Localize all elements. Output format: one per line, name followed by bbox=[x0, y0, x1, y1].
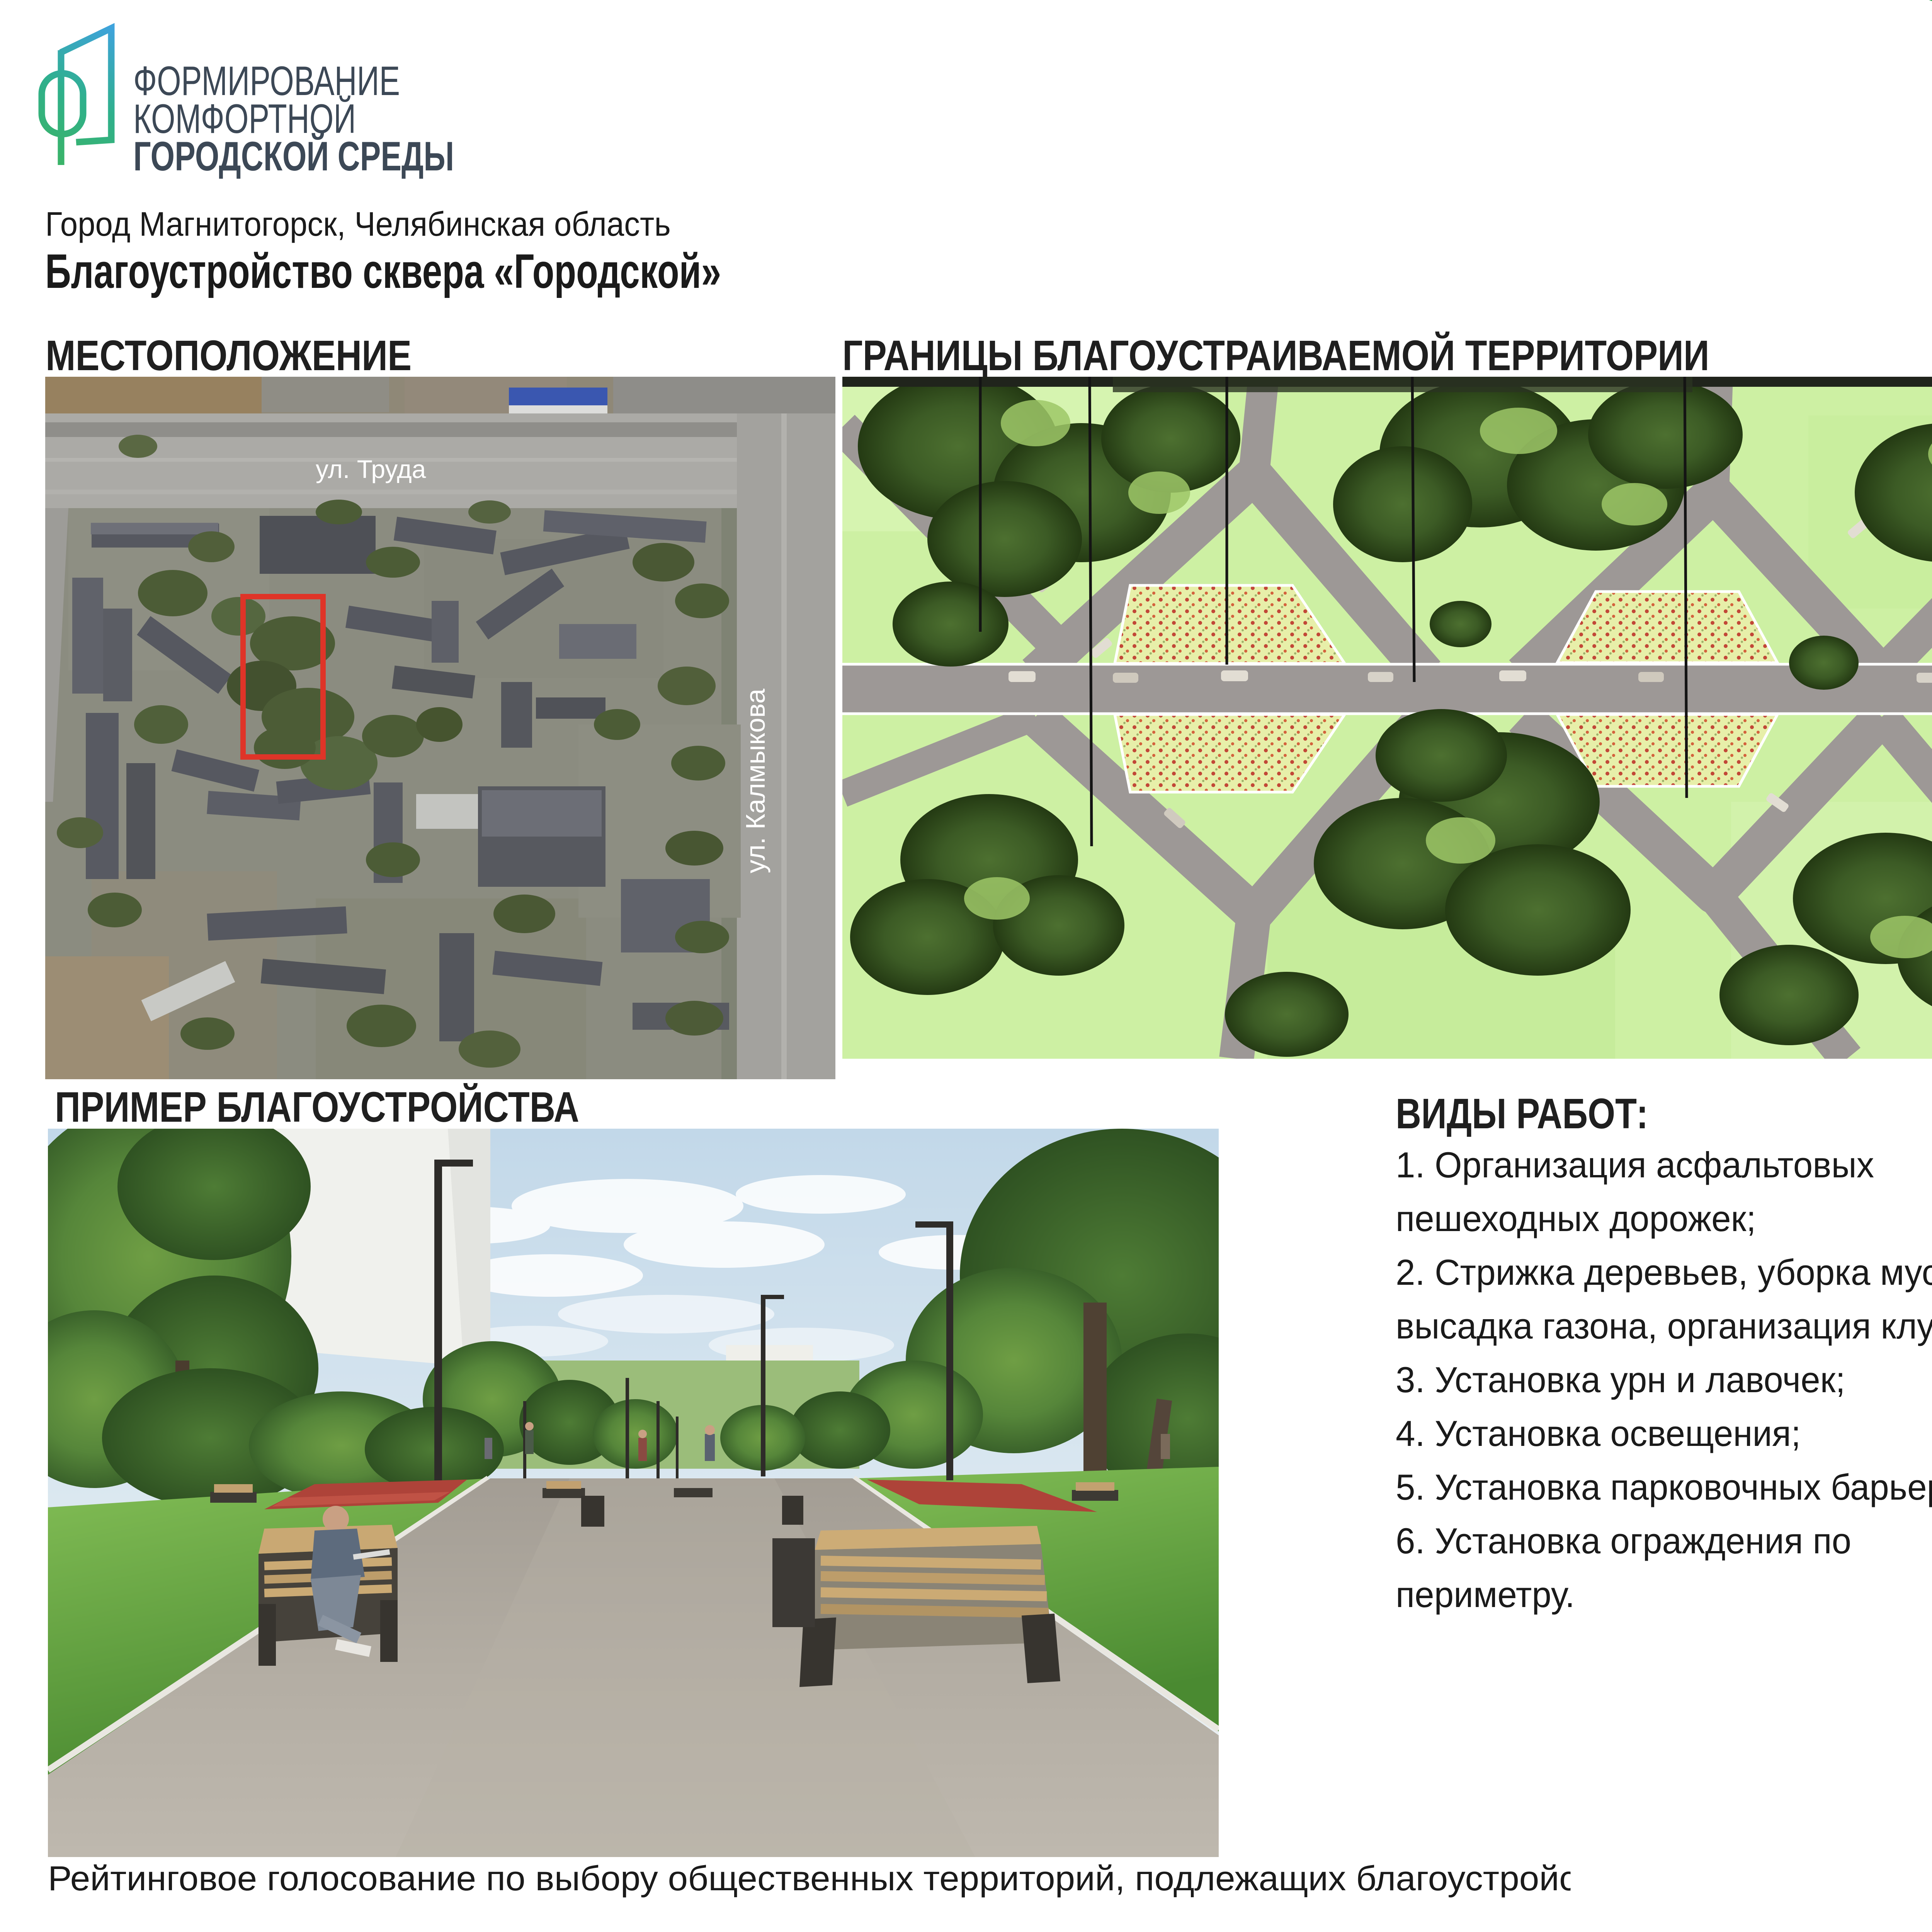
svg-text:ул. Труда: ул. Труда bbox=[316, 455, 426, 483]
svg-text:ул. Калмыкова: ул. Калмыкова bbox=[740, 689, 770, 873]
